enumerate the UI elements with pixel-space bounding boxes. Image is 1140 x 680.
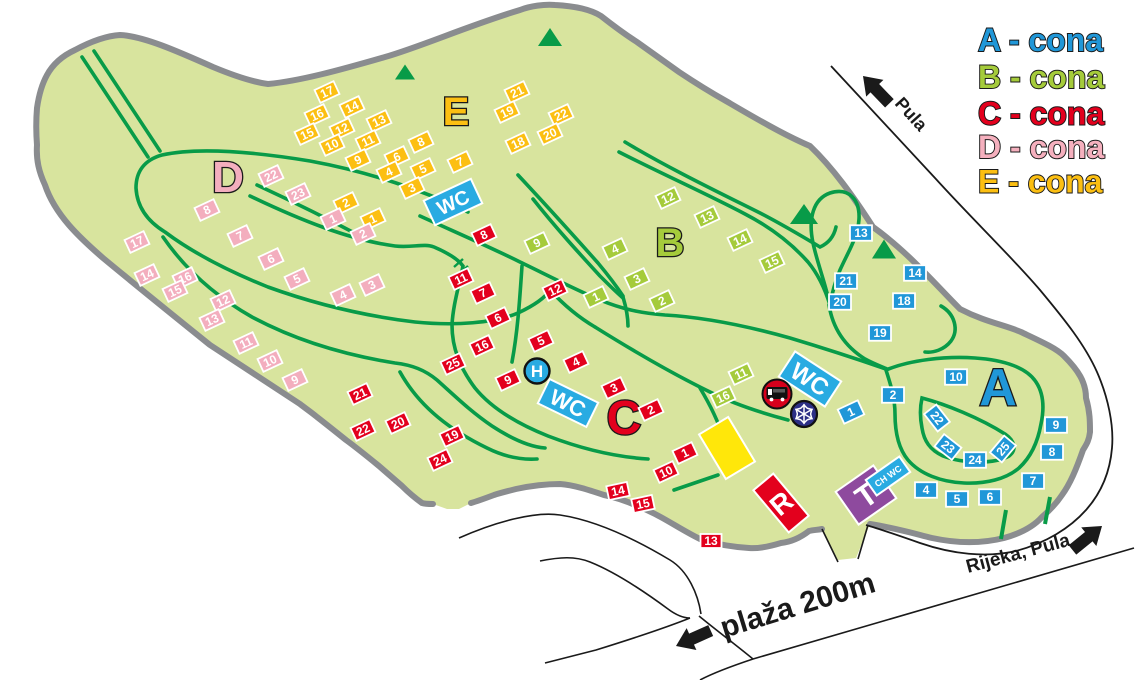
svg-text:8: 8 — [1049, 445, 1056, 459]
svg-text:C - cona: C - cona — [978, 96, 1104, 132]
svg-text:10: 10 — [949, 370, 963, 384]
svg-text:D: D — [212, 153, 244, 202]
svg-text:E: E — [443, 90, 470, 134]
svg-text:6: 6 — [987, 490, 994, 504]
svg-text:21: 21 — [839, 274, 853, 288]
svg-text:B - cona: B - cona — [978, 59, 1104, 95]
svg-text:20: 20 — [833, 295, 847, 309]
svg-text:19: 19 — [873, 326, 887, 340]
svg-text:14: 14 — [908, 266, 922, 280]
svg-text:H: H — [531, 362, 543, 381]
svg-text:Pula: Pula — [891, 93, 932, 135]
svg-text:E - cona: E - cona — [978, 164, 1103, 200]
svg-text:A - cona: A - cona — [978, 22, 1103, 58]
svg-text:18: 18 — [897, 294, 911, 308]
svg-text:2: 2 — [890, 388, 897, 402]
svg-text:4: 4 — [923, 483, 930, 497]
svg-text:B: B — [656, 221, 685, 265]
svg-text:C: C — [607, 392, 642, 445]
svg-text:7: 7 — [1030, 474, 1037, 488]
svg-text:24: 24 — [968, 453, 982, 467]
svg-text:5: 5 — [954, 492, 961, 506]
svg-text:13: 13 — [704, 534, 718, 548]
svg-text:9: 9 — [1053, 418, 1060, 432]
svg-text:13: 13 — [854, 226, 868, 240]
svg-text:D - cona: D - cona — [978, 129, 1104, 165]
svg-text:plaža 200m: plaža 200m — [716, 566, 879, 644]
svg-text:A: A — [979, 359, 1017, 417]
